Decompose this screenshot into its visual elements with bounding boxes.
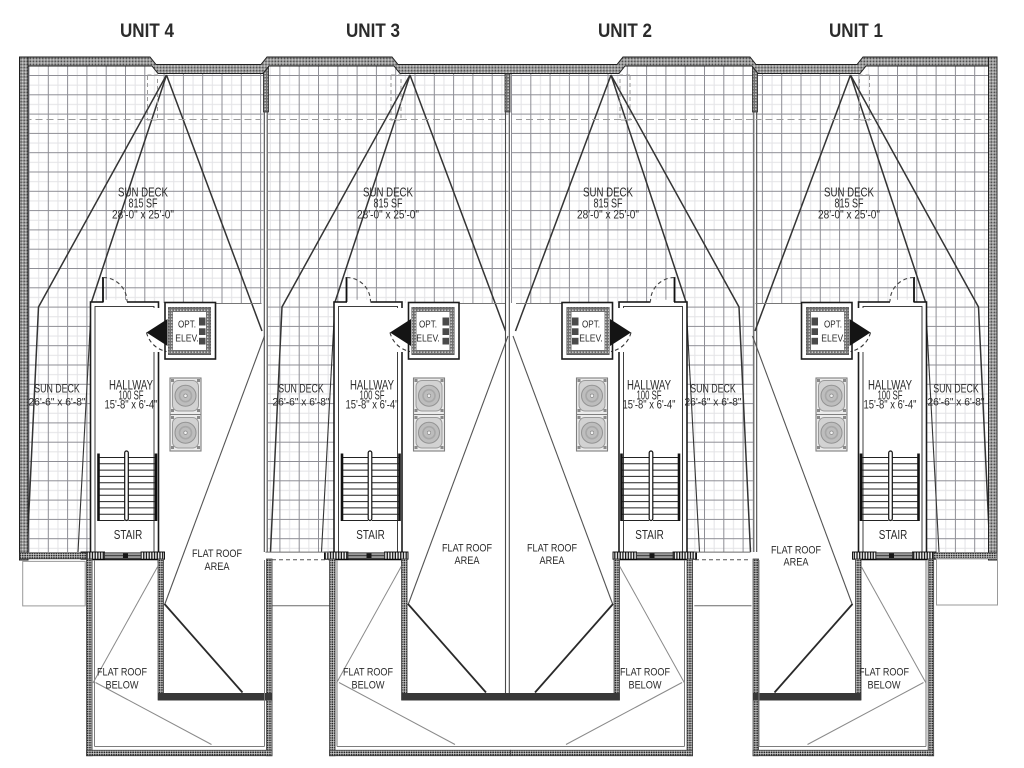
svg-text:28'-0" x 25'-0": 28'-0" x 25'-0" bbox=[112, 210, 174, 222]
svg-text:28'-0" x 25'-0": 28'-0" x 25'-0" bbox=[357, 210, 419, 222]
svg-text:STAIR: STAIR bbox=[114, 528, 143, 542]
svg-text:ELEV.: ELEV. bbox=[579, 334, 603, 345]
svg-text:OPT.: OPT. bbox=[824, 320, 842, 331]
svg-text:UNIT 3: UNIT 3 bbox=[346, 21, 400, 42]
svg-text:BELOW: BELOW bbox=[106, 680, 140, 692]
svg-text:UNIT 2: UNIT 2 bbox=[598, 21, 652, 42]
svg-text:AREA: AREA bbox=[455, 555, 481, 567]
svg-text:815 SF: 815 SF bbox=[835, 197, 864, 211]
svg-text:FLAT ROOF: FLAT ROOF bbox=[97, 667, 147, 679]
svg-text:UNIT 1: UNIT 1 bbox=[829, 21, 883, 42]
svg-text:ELEV.: ELEV. bbox=[416, 334, 440, 345]
svg-text:OPT.: OPT. bbox=[419, 320, 437, 331]
svg-text:OPT.: OPT. bbox=[178, 320, 196, 331]
svg-text:FLAT ROOF: FLAT ROOF bbox=[192, 548, 242, 560]
svg-text:STAIR: STAIR bbox=[356, 528, 385, 542]
svg-text:15'-8" x 6'-4": 15'-8" x 6'-4" bbox=[346, 400, 399, 412]
svg-text:15'-8" x 6'-4": 15'-8" x 6'-4" bbox=[864, 400, 917, 412]
svg-text:28'-0" x 25'-0": 28'-0" x 25'-0" bbox=[818, 210, 880, 222]
svg-text:BELOW: BELOW bbox=[629, 680, 663, 692]
svg-text:FLAT ROOF: FLAT ROOF bbox=[527, 543, 577, 555]
svg-text:STAIR: STAIR bbox=[635, 528, 664, 542]
svg-text:FLAT ROOF: FLAT ROOF bbox=[771, 545, 821, 557]
svg-text:28'-0" x 25'-0": 28'-0" x 25'-0" bbox=[577, 210, 639, 222]
svg-text:SUN DECK: SUN DECK bbox=[34, 382, 80, 396]
svg-text:26'-6" x 6'-8": 26'-6" x 6'-8" bbox=[29, 397, 86, 409]
svg-text:26'-6" x 6'-8": 26'-6" x 6'-8" bbox=[928, 397, 985, 409]
svg-text:OPT.: OPT. bbox=[582, 320, 600, 331]
svg-text:BELOW: BELOW bbox=[352, 680, 386, 692]
svg-text:SUN DECK: SUN DECK bbox=[690, 382, 736, 396]
svg-text:15'-8" x 6'-4": 15'-8" x 6'-4" bbox=[623, 400, 676, 412]
svg-text:ELEV.: ELEV. bbox=[175, 334, 199, 345]
svg-text:AREA: AREA bbox=[784, 557, 810, 569]
svg-text:AREA: AREA bbox=[205, 561, 231, 573]
svg-text:SUN DECK: SUN DECK bbox=[933, 382, 979, 396]
svg-text:26'-6" x 6'-8": 26'-6" x 6'-8" bbox=[685, 397, 742, 409]
svg-text:SUN DECK: SUN DECK bbox=[278, 382, 324, 396]
svg-text:ELEV.: ELEV. bbox=[821, 334, 845, 345]
svg-text:FLAT ROOF: FLAT ROOF bbox=[343, 667, 393, 679]
svg-text:26'-6" x 6'-8": 26'-6" x 6'-8" bbox=[273, 397, 330, 409]
svg-text:815 SF: 815 SF bbox=[129, 197, 158, 211]
svg-text:BELOW: BELOW bbox=[868, 680, 902, 692]
svg-text:STAIR: STAIR bbox=[879, 528, 908, 542]
svg-text:UNIT 4: UNIT 4 bbox=[120, 21, 174, 42]
svg-text:815 SF: 815 SF bbox=[594, 197, 623, 211]
svg-text:815 SF: 815 SF bbox=[374, 197, 403, 211]
svg-text:FLAT ROOF: FLAT ROOF bbox=[859, 667, 909, 679]
svg-text:FLAT ROOF: FLAT ROOF bbox=[442, 543, 492, 555]
svg-text:AREA: AREA bbox=[540, 555, 566, 567]
svg-text:FLAT ROOF: FLAT ROOF bbox=[620, 667, 670, 679]
svg-text:15'-8" x 6'-4": 15'-8" x 6'-4" bbox=[105, 400, 158, 412]
